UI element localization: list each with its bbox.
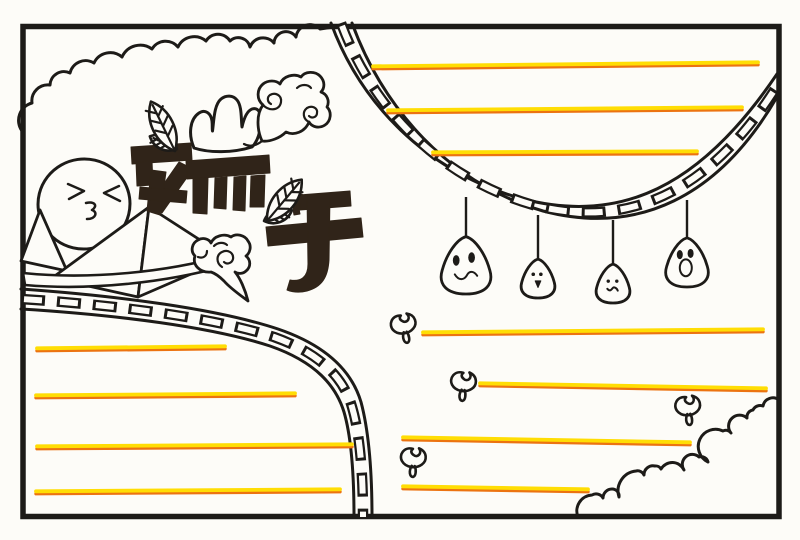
line-yellow-body	[36, 489, 340, 491]
eye-left	[531, 272, 535, 276]
line-yellow-body	[36, 393, 295, 395]
writing-line-bottom_left	[37, 444, 352, 448]
line-yellow-body	[37, 444, 352, 446]
open-mouth	[680, 259, 692, 276]
writing-line-top_right	[433, 151, 697, 154]
writing-line-bottom_left	[36, 393, 295, 397]
eye-right	[615, 279, 618, 282]
eye-right	[688, 249, 694, 258]
eye-right	[468, 252, 475, 263]
eye-left	[453, 255, 460, 266]
duanwu-poster: 端午	[0, 0, 800, 540]
eye-left	[677, 250, 683, 259]
poster-drawing	[0, 0, 800, 540]
line-yellow-body	[433, 151, 697, 152]
line-yellow-body	[37, 346, 225, 348]
eye-right	[539, 272, 543, 276]
writing-line-bottom_left	[37, 346, 225, 350]
writing-line-bottom_left	[36, 489, 340, 493]
eye-left	[607, 279, 610, 282]
